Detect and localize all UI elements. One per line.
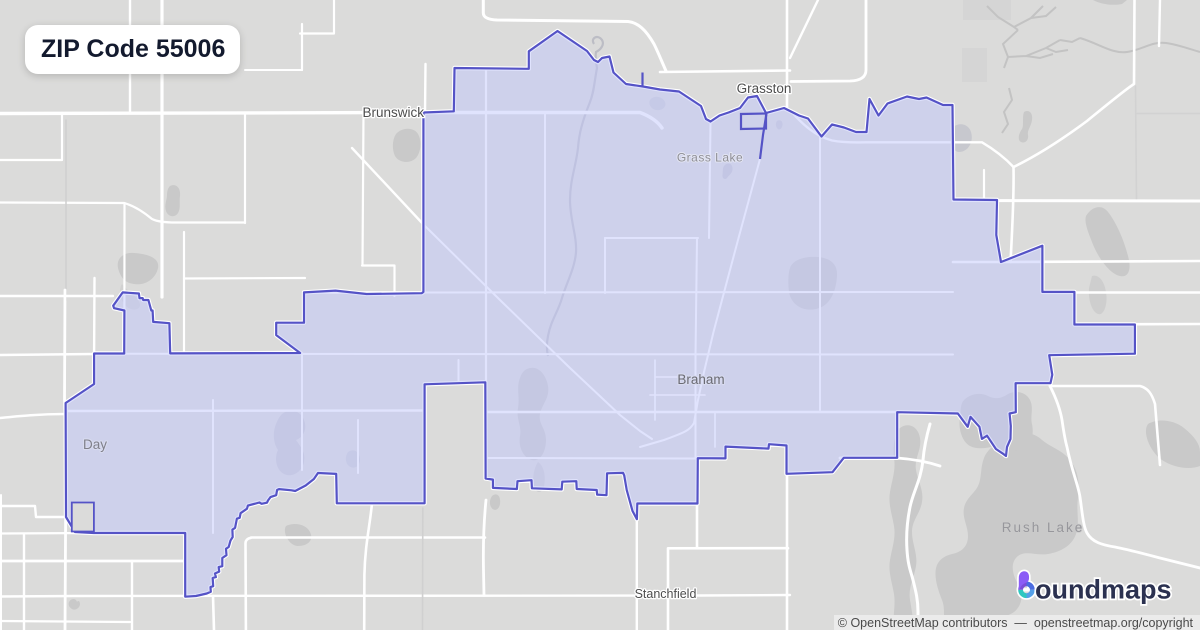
svg-text:Brunswick: Brunswick <box>362 105 424 120</box>
svg-text:Stanchfield: Stanchfield <box>635 587 697 601</box>
svg-text:Rush Lake: Rush Lake <box>1002 520 1085 535</box>
svg-text:oundmaps: oundmaps <box>1035 575 1172 605</box>
svg-text:Braham: Braham <box>677 372 724 387</box>
svg-text:Day: Day <box>83 437 107 452</box>
svg-text:Grasston: Grasston <box>737 81 792 96</box>
svg-text:Grass Lake: Grass Lake <box>677 151 743 165</box>
